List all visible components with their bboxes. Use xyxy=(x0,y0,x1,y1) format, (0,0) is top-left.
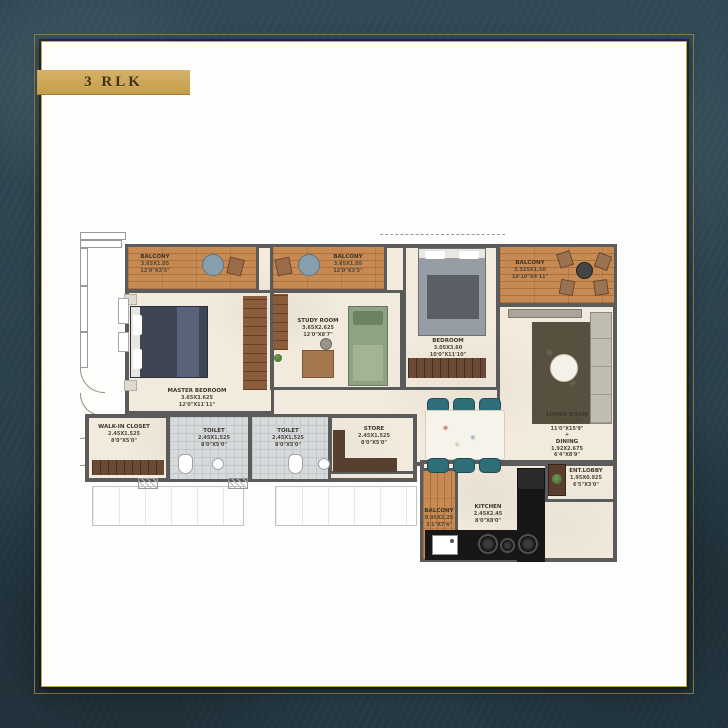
label-kitchen: KITCHEN 2.45X2.45 8'0"X8'0" xyxy=(474,504,503,524)
toilet-wc xyxy=(178,454,193,474)
balcony-table xyxy=(298,254,320,276)
fridge xyxy=(517,468,545,490)
room-dim-m: 0.95X2.25 xyxy=(424,515,453,522)
plant-icon xyxy=(552,474,562,484)
balcony-table xyxy=(202,254,224,276)
room-name: STUDY ROOM xyxy=(297,318,338,324)
bed-blanket-fold xyxy=(427,275,479,319)
label-balcony-bottom: BALCONY 0.95X2.25 3'1"X7'4" xyxy=(424,508,453,528)
label-balcony-middle: BALCONY 3.65X1.05 12'0"X3'5" xyxy=(333,254,363,274)
room-dim-ft: 8'0"X5'0" xyxy=(98,438,150,445)
room-dim-m: 2.45X1.525 xyxy=(272,435,304,442)
room-dim-ft: 12'0"X3'5" xyxy=(333,268,363,275)
label-bedroom: BEDROOM 3.05X3.60 10'0"X11'10" xyxy=(430,338,466,358)
label-living-dining: LIVING ROOM 3.35X4.80 11'0"X15'9" + DINI… xyxy=(546,412,588,459)
ac-unit xyxy=(118,298,129,324)
study-daybed-furniture xyxy=(348,306,388,386)
room-dim-ft: 8'0"X5'0" xyxy=(272,442,304,449)
bed-pillow xyxy=(425,251,445,259)
neighbor-outline xyxy=(275,486,417,526)
room-dim-ft: 3'1"X7'4" xyxy=(424,522,453,529)
dining-chair xyxy=(453,458,475,473)
ac-unit xyxy=(118,332,129,352)
floor-plan-page: { "badge": { "label": "3 RLK" }, "colors… xyxy=(0,0,728,728)
room-dim-m: 2.45X1.525 xyxy=(198,435,230,442)
room-dim-ft: 6'4"X8'9" xyxy=(546,452,588,459)
faucet xyxy=(450,539,454,543)
stove-burner xyxy=(518,534,538,554)
sofa-furniture xyxy=(590,312,612,424)
room-name: TOILET xyxy=(277,428,299,434)
room-dim-m: 3.05X3.60 xyxy=(430,345,466,352)
bed-blanket-fold xyxy=(177,307,199,377)
room-dim-ft: 8'0"X5'0" xyxy=(358,440,390,447)
nightstand xyxy=(124,380,137,391)
room-dim-m: 3.65X1.05 xyxy=(333,261,363,268)
room-dim-ft: 6'5"X3'0" xyxy=(569,482,602,489)
study-shelf xyxy=(273,294,288,350)
room-name: BEDROOM xyxy=(432,338,464,344)
window xyxy=(80,232,126,240)
room-dim-ft: 12'0"X8'7" xyxy=(297,332,338,339)
room-name: ENT.LOBBY xyxy=(569,468,602,474)
window xyxy=(80,286,88,332)
plan-type-label: 3 RLK xyxy=(84,74,143,91)
room-dim-m: 3.325X1.50 xyxy=(512,267,548,274)
bed-pillow xyxy=(133,349,142,369)
label-ent-lobby: ENT.LOBBY 1.95X0.925 6'5"X3'0" xyxy=(569,468,602,488)
closet-wardrobe xyxy=(92,460,164,475)
label-study-room: STUDY ROOM 3.65X2.625 12'0"X8'7" xyxy=(297,318,338,338)
room-dim-ft: 10'10"X4'11" xyxy=(512,274,548,281)
room-name: STORE xyxy=(364,426,384,432)
duct-shaft xyxy=(138,478,158,489)
door-swing xyxy=(80,393,103,416)
kitchen-sink xyxy=(432,535,458,555)
label-master-bedroom: MASTER BEDROOM 3.65X3.625 12'0"X11'11" xyxy=(168,388,227,408)
label-balcony-top-right: BALCONY 3.325X1.50 10'10"X4'11" xyxy=(512,260,548,280)
washbasin xyxy=(212,458,224,470)
room-dim-m: 2.45X1.525 xyxy=(358,433,390,440)
room-name: LIVING ROOM xyxy=(546,412,588,418)
room-dim-m: 1.95X0.925 xyxy=(569,475,602,482)
dining-table xyxy=(425,410,505,460)
label-store: STORE 2.45X1.525 8'0"X5'0" xyxy=(358,426,390,446)
room-name: BALCONY xyxy=(140,254,169,260)
room-dim-m: 2.45X2.45 xyxy=(474,511,503,518)
daybed-pillow xyxy=(353,311,383,325)
room-dim-ft: 12'0"X3'5" xyxy=(140,268,170,275)
label-walk-in-closet: WALK-IN CLOSET 2.45X1.525 8'0"X5'0" xyxy=(98,424,150,444)
bed-pillow xyxy=(459,251,479,259)
room-name: TOILET xyxy=(203,428,225,434)
master-bed-furniture xyxy=(130,306,208,378)
room-dim-ft: 12'0"X11'11" xyxy=(168,402,227,409)
neighbor-outline xyxy=(92,486,244,526)
stove-burner xyxy=(500,538,515,553)
balcony-chair xyxy=(274,257,292,277)
room-dim-m: 3.65X1.05 xyxy=(140,261,170,268)
dining-chair xyxy=(479,458,501,473)
desk-chair xyxy=(320,338,332,350)
store-shelf xyxy=(333,458,397,472)
balcony-chair xyxy=(593,279,609,296)
stove-burner xyxy=(478,534,498,554)
balcony-round-table xyxy=(576,262,593,279)
room-name: BALCONY xyxy=(515,260,544,266)
label-toilet-2: TOILET 2.45X1.525 8'0"X5'0" xyxy=(272,428,304,448)
plant-icon xyxy=(274,354,282,362)
label-toilet-1: TOILET 2.45X1.525 8'0"X5'0" xyxy=(198,428,230,448)
daybed-blanket xyxy=(353,345,383,381)
coffee-table xyxy=(550,354,578,382)
bed-pillow xyxy=(133,315,142,335)
window xyxy=(80,332,88,368)
bedroom-wardrobe xyxy=(408,358,486,378)
window xyxy=(80,240,122,248)
floor-plan: BALCONY 3.65X1.05 12'0"X3'5" BALCONY 3.6… xyxy=(80,232,617,564)
label-balcony-top-left: BALCONY 3.65X1.05 12'0"X3'5" xyxy=(140,254,170,274)
room-dim-m: 3.65X2.625 xyxy=(297,325,338,332)
dining-chair xyxy=(427,458,449,473)
room-name: MASTER BEDROOM xyxy=(168,388,227,394)
door-swing xyxy=(80,368,105,393)
washbasin xyxy=(318,458,330,470)
room-dim-ft: 8'0"X8'0" xyxy=(474,518,503,525)
study-desk xyxy=(302,350,334,378)
master-wardrobe xyxy=(243,296,267,390)
tv-console xyxy=(508,309,582,318)
window xyxy=(80,248,88,286)
room-name: WALK-IN CLOSET xyxy=(98,424,150,430)
toilet-wc xyxy=(288,454,303,474)
bedroom-bed-furniture xyxy=(418,248,486,336)
room-name: DINING xyxy=(546,439,588,446)
room-name: KITCHEN xyxy=(474,504,501,510)
room-dim-ft: 10'0"X11'10" xyxy=(430,352,466,359)
balcony-chair xyxy=(559,279,575,296)
room-name: BALCONY xyxy=(333,254,362,260)
dashed-boundary-line xyxy=(380,234,505,235)
duct-shaft xyxy=(228,478,248,489)
room-name: BALCONY xyxy=(424,508,453,514)
plan-type-badge: 3 RLK xyxy=(37,70,190,95)
room-dim-ft: 8'0"X5'0" xyxy=(198,442,230,449)
